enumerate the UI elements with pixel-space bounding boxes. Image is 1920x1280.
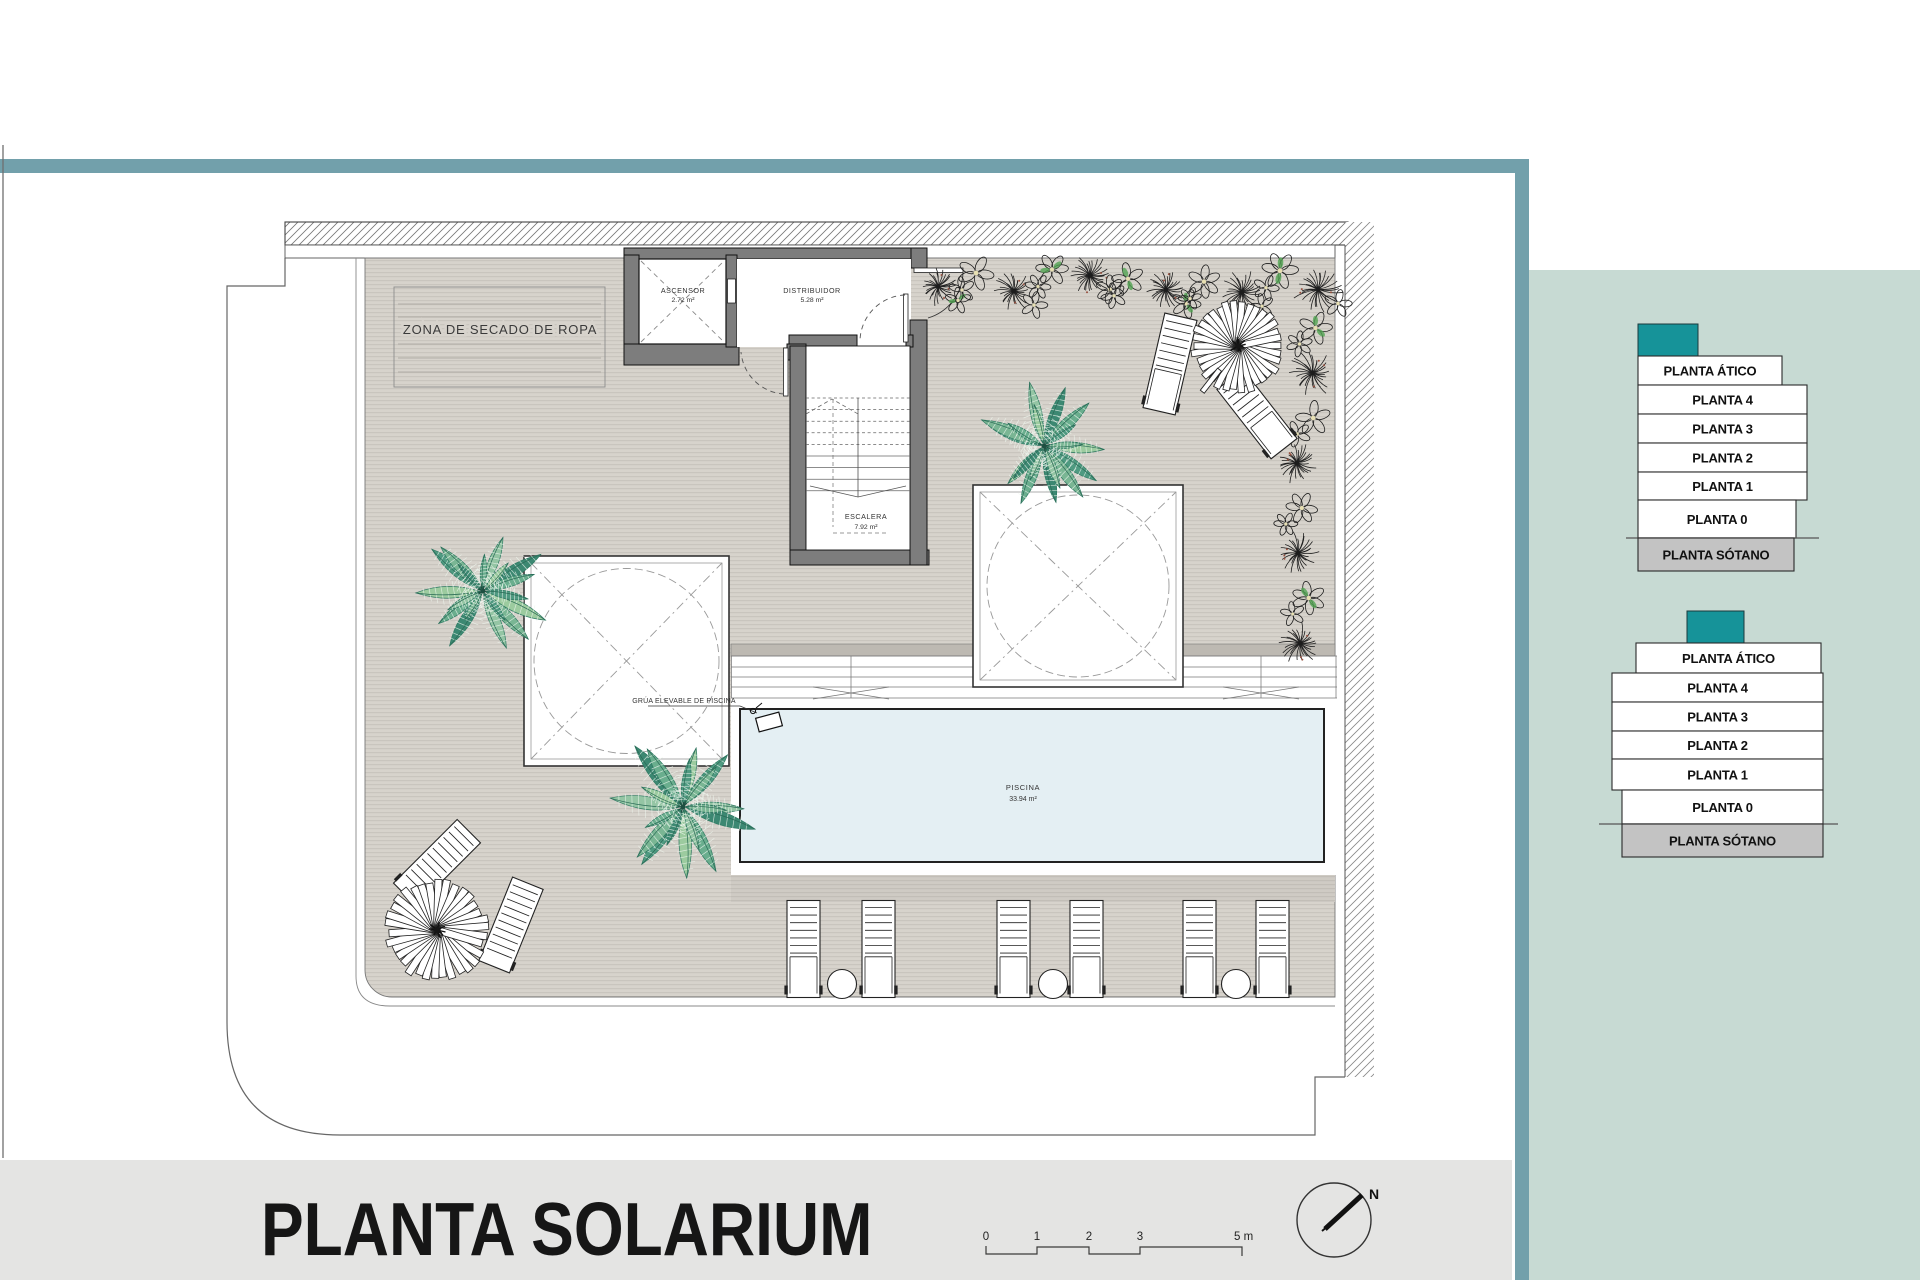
svg-text:PLANTA SOLARIUM: PLANTA SOLARIUM <box>261 1187 872 1271</box>
svg-text:PLANTA 3: PLANTA 3 <box>1692 422 1753 437</box>
svg-text:DISTRIBUIDOR: DISTRIBUIDOR <box>783 286 841 295</box>
svg-text:PLANTA 1: PLANTA 1 <box>1692 479 1753 494</box>
svg-text:PLANTA 1: PLANTA 1 <box>1687 768 1748 783</box>
svg-text:PLANTA 0: PLANTA 0 <box>1687 512 1748 527</box>
svg-text:PLANTA ÁTICO: PLANTA ÁTICO <box>1682 651 1775 666</box>
svg-text:7.92 m²: 7.92 m² <box>854 524 878 531</box>
svg-text:PLANTA 2: PLANTA 2 <box>1692 451 1753 466</box>
svg-text:33.94 m²: 33.94 m² <box>1009 796 1037 803</box>
svg-text:PLANTA 4: PLANTA 4 <box>1687 681 1748 696</box>
svg-text:1: 1 <box>1034 1231 1040 1243</box>
svg-text:PLANTA SÓTANO: PLANTA SÓTANO <box>1663 548 1770 563</box>
svg-text:ASCENSOR: ASCENSOR <box>661 286 705 295</box>
svg-text:PLANTA 3: PLANTA 3 <box>1687 710 1748 725</box>
svg-text:2.72 m²: 2.72 m² <box>671 297 695 304</box>
svg-text:5.28 m²: 5.28 m² <box>800 297 824 304</box>
svg-text:PISCINA: PISCINA <box>1006 783 1040 792</box>
svg-text:0: 0 <box>983 1231 989 1243</box>
svg-text:N: N <box>1369 1186 1379 1202</box>
svg-text:PLANTA SÓTANO: PLANTA SÓTANO <box>1669 834 1776 849</box>
svg-text:2: 2 <box>1086 1231 1092 1243</box>
svg-text:PLANTA 2: PLANTA 2 <box>1687 738 1748 753</box>
svg-text:3: 3 <box>1137 1231 1143 1243</box>
svg-text:ZONA DE SECADO DE ROPA: ZONA DE SECADO DE ROPA <box>403 322 597 337</box>
svg-text:5 m: 5 m <box>1234 1231 1253 1243</box>
svg-text:ESCALERA: ESCALERA <box>845 512 887 521</box>
svg-text:PLANTA ÁTICO: PLANTA ÁTICO <box>1664 364 1757 379</box>
svg-text:PLANTA 0: PLANTA 0 <box>1692 800 1753 815</box>
svg-text:GRÚA ELEVABLE DE PISCINA: GRÚA ELEVABLE DE PISCINA <box>632 696 736 705</box>
svg-text:PLANTA 4: PLANTA 4 <box>1692 393 1753 408</box>
